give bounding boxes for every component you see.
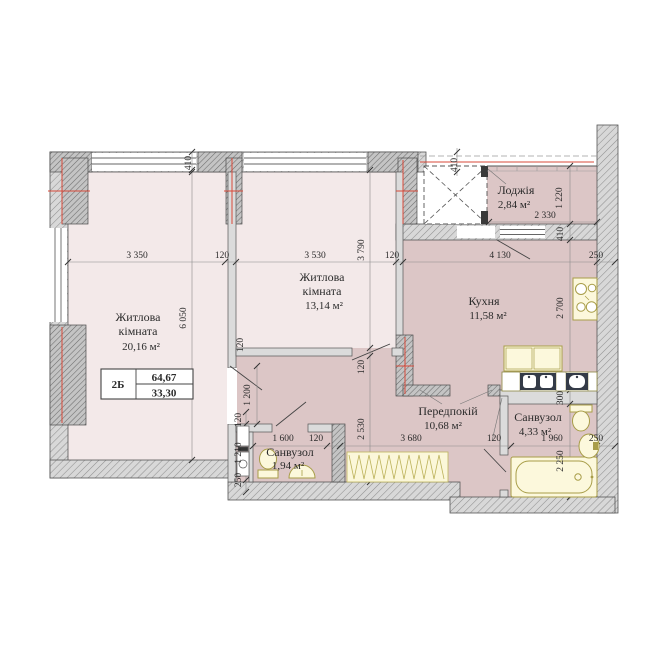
dim-door-room1: 1 200 — [243, 384, 253, 406]
pier-left-mid — [50, 325, 86, 425]
kitchen-area: 11,58 м² — [469, 310, 507, 322]
section-mark — [481, 211, 488, 224]
shaft — [424, 166, 488, 224]
room1-name-line1: Житлова — [116, 310, 162, 324]
wall-bath-bottom — [450, 497, 615, 513]
dim-wall-kb: 300 — [556, 391, 566, 406]
balcony-door-opening — [457, 226, 495, 238]
dim-wall-right: 250 — [589, 251, 604, 261]
kitchen-table — [504, 346, 562, 371]
dim-wall-right: 250 — [589, 434, 604, 444]
wall-right — [597, 125, 618, 513]
dim-kitchen-width: 4 130 — [489, 251, 511, 261]
dim-wall-top: 410 — [450, 158, 460, 173]
kitchen-sink-icon — [566, 373, 588, 390]
loggia-name: Лоджія — [498, 183, 535, 197]
room2-name-line1: Житлова — [300, 270, 346, 284]
dim-wall-top: 410 — [556, 227, 566, 242]
window-room2 — [244, 153, 366, 171]
loggia-area: 2,84 м² — [498, 199, 531, 211]
bathbig-name: Санвузол — [514, 410, 562, 424]
dim-wall: 120 — [487, 434, 502, 444]
wall-piece — [488, 385, 500, 396]
window-room1 — [92, 153, 196, 171]
dim-wall-right: 250 — [234, 473, 244, 488]
hall-area: 10,68 м² — [424, 420, 462, 432]
wall-room1-bottom — [50, 460, 236, 478]
window-left — [49, 228, 67, 322]
bathbig-area: 4,33 м² — [519, 426, 552, 438]
room2-name-line2: кімната — [303, 284, 343, 298]
unit-info-box: 2Б 64,67 33,30 — [101, 369, 193, 400]
stove-icon — [573, 278, 597, 320]
dim-wall: 120 — [215, 251, 230, 261]
dim-room1-width: 3 350 — [126, 251, 148, 261]
wardrobe-hatch — [347, 452, 448, 482]
unit-area-total: 64,67 — [152, 372, 177, 384]
dim-wall: 120 — [234, 413, 244, 428]
dim-wall: 120 — [236, 338, 246, 353]
dim-hall-height: 2 530 — [357, 418, 367, 440]
hall-name: Передпокій — [418, 404, 478, 418]
dim-bathsmall-height: 1 210 — [234, 442, 244, 464]
wall-bathsmall-west — [249, 432, 253, 482]
unit-area-living: 33,30 — [152, 388, 177, 400]
wall-room2-south — [236, 348, 352, 356]
wall-room2-south-stub — [392, 348, 403, 356]
wall-kitchen-north — [396, 224, 597, 240]
dim-wall-top: 410 — [184, 156, 194, 171]
dim-wall: 120 — [357, 360, 367, 375]
dim-hall-width: 3 680 — [400, 434, 422, 444]
dim-bathsmall-width: 1 600 — [272, 434, 294, 444]
dim-bathbig-height: 2 250 — [556, 450, 566, 472]
section-mark — [481, 166, 488, 177]
wall-kitchen-bath — [500, 390, 597, 404]
floor-plan: 3 350 120 3 530 120 4 130 250 410 410 6 … — [0, 0, 660, 660]
dim-loggia-height: 1 220 — [555, 187, 565, 209]
dim-wall: 120 — [385, 251, 400, 261]
dim-room2-height: 3 790 — [357, 239, 367, 261]
bathsmall-area: 1,94 м² — [272, 460, 305, 472]
floor-plan-svg: 3 350 120 3 530 120 4 130 250 410 410 6 … — [0, 0, 660, 660]
wall-hall-bottom — [228, 482, 460, 500]
dim-room1-height: 6 050 — [179, 307, 189, 329]
kitchen-name: Кухня — [468, 294, 500, 308]
bathsmall-name: Санвузол — [266, 445, 314, 459]
unit-type: 2Б — [112, 379, 125, 391]
dim-wall: 120 — [309, 434, 324, 444]
room2-area: 13,14 м² — [305, 300, 343, 312]
wall-bathsmall-east — [332, 424, 345, 482]
bathtub-icon — [511, 457, 597, 497]
room1-area: 20,16 м² — [122, 341, 160, 353]
room1-name-line2: кімната — [119, 324, 159, 338]
wall-bathbig-west-stub — [500, 490, 508, 497]
kitchen-sink-icon — [520, 373, 556, 390]
wall-bathsmall-north-b — [308, 424, 332, 432]
dim-kitchen-height: 2 700 — [556, 297, 566, 319]
kitchen-counter — [502, 372, 597, 391]
dim-loggia-width: 2 330 — [534, 211, 556, 221]
dim-room2-width: 3 530 — [304, 251, 326, 261]
window-kitchen — [500, 226, 545, 238]
